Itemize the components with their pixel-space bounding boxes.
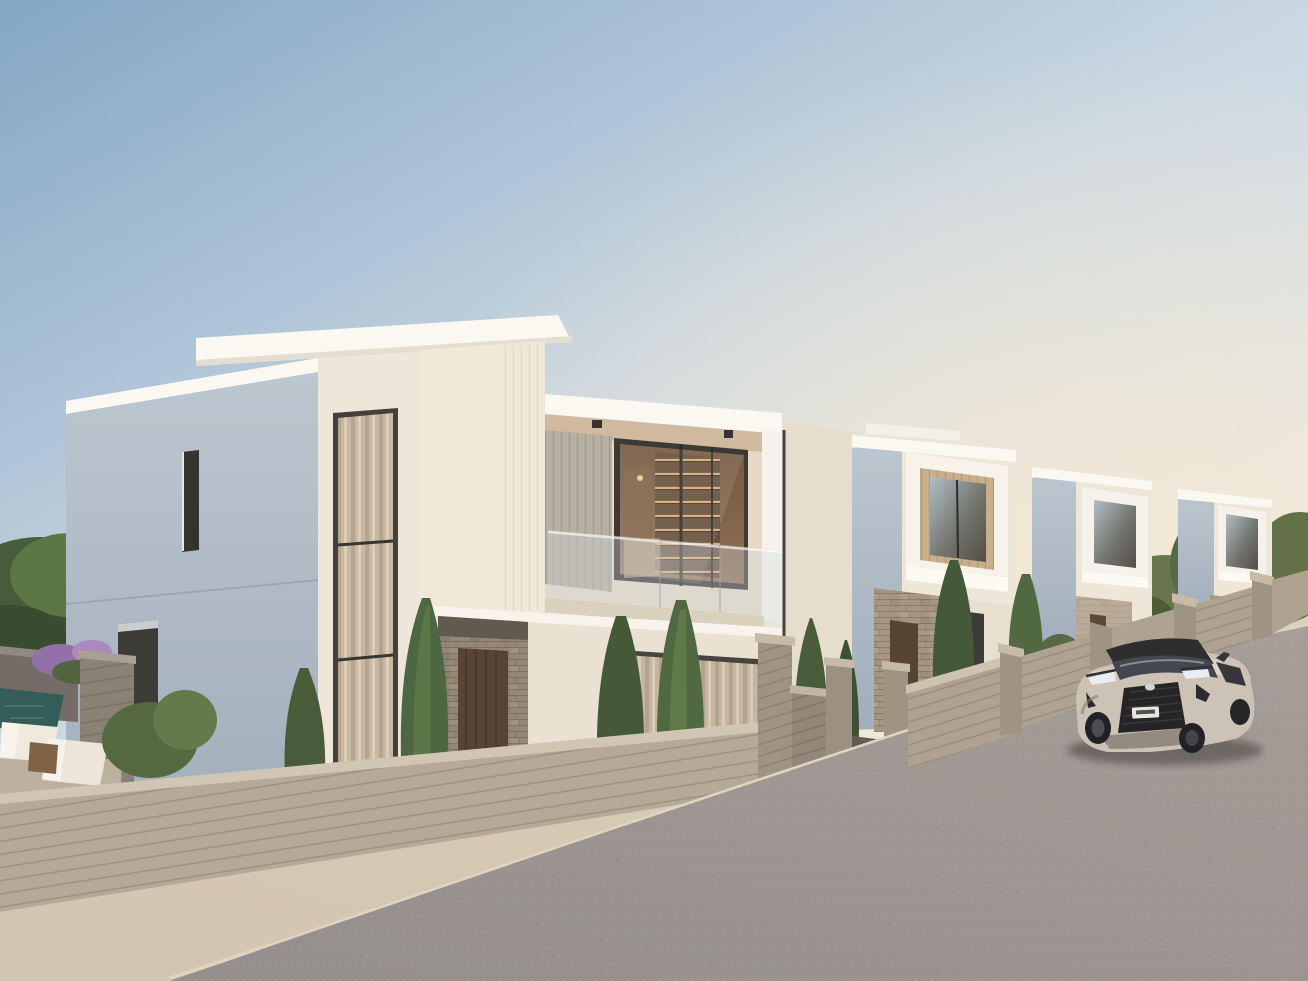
warm-light-wash (0, 0, 1308, 981)
architectural-render (0, 0, 1308, 981)
